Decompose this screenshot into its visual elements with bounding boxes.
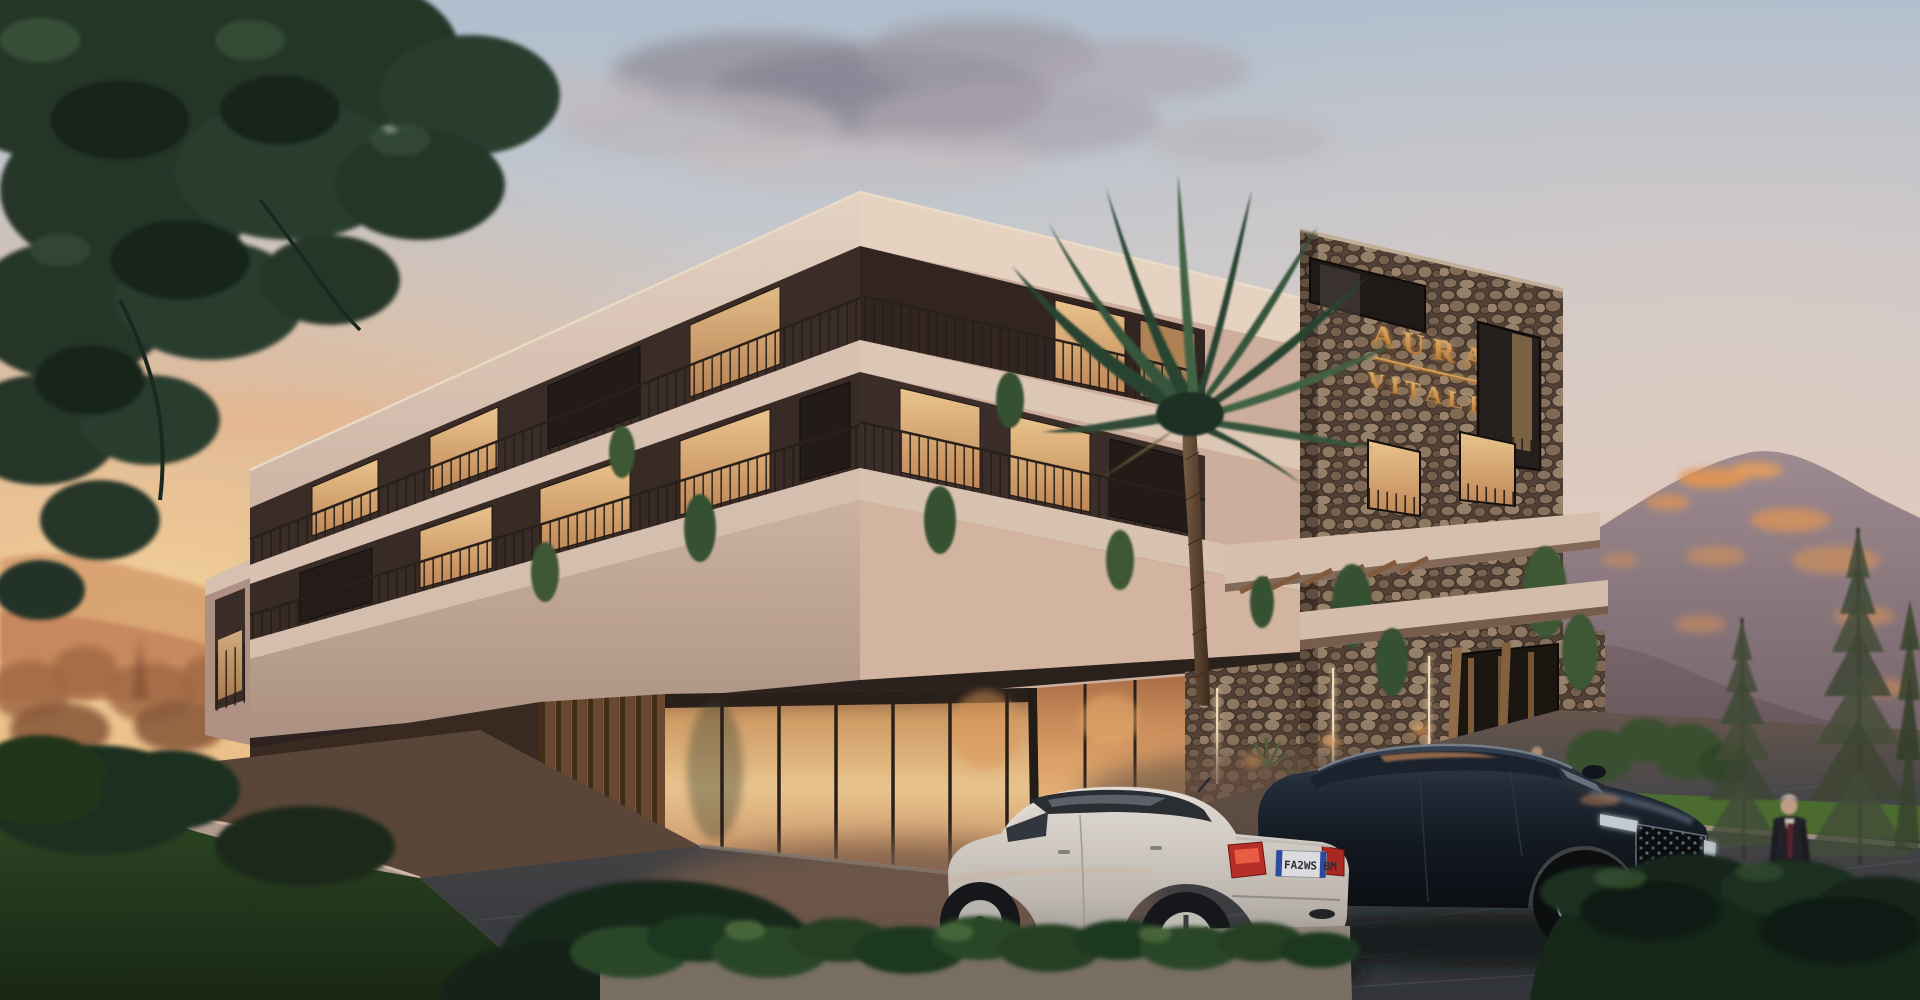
vignette [0, 0, 1920, 1000]
rendering-canvas: AURA VITALIS [0, 0, 1920, 1000]
scene-svg: AURA VITALIS [0, 0, 1920, 1000]
